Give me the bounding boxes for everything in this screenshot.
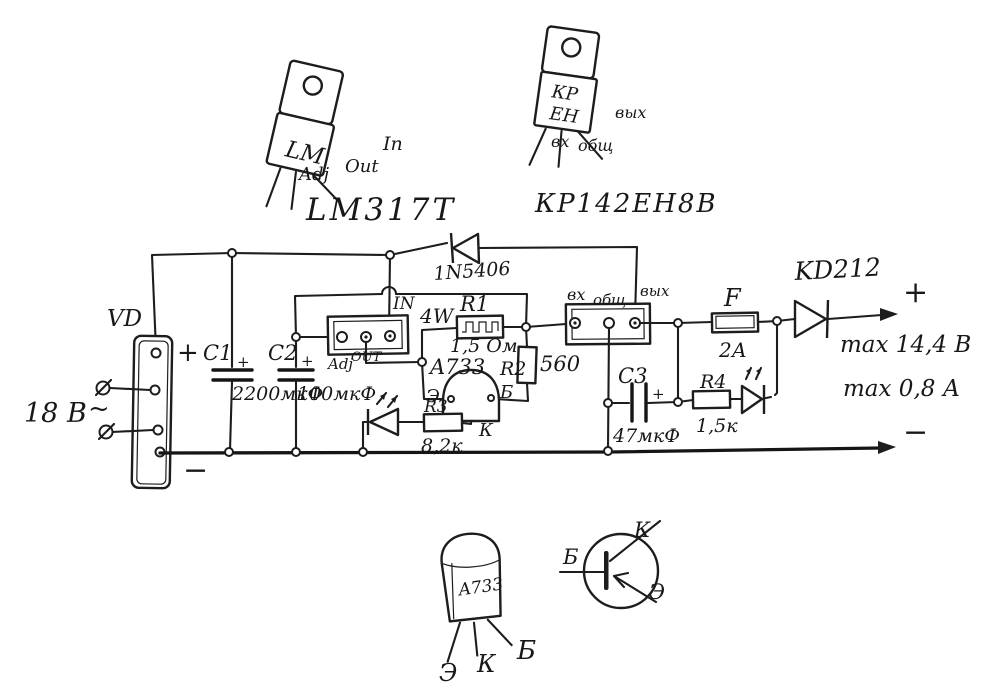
- regulator1-pin-adj: [337, 332, 347, 342]
- q1-pin-e: [448, 396, 454, 402]
- lm317-pin-label-in: In: [382, 133, 403, 155]
- c1-label: C1: [203, 341, 232, 365]
- a733-pin-label-e: Э: [439, 659, 457, 687]
- diode1-label: 1N5406: [433, 258, 511, 285]
- kren-body-marking-top: КР: [549, 81, 580, 106]
- r4-value: 1,5к: [696, 415, 738, 437]
- wire-led2-up: [775, 325, 777, 395]
- q1-label: A733: [428, 355, 485, 379]
- regulator2-in-label: вх: [567, 285, 585, 304]
- wire-gnd-drop: [608, 328, 609, 450]
- regulator1-in-label: IN: [392, 294, 416, 314]
- node: [225, 448, 233, 456]
- ac-symbol: ~: [88, 394, 110, 424]
- diode2-triangle-icon: [795, 301, 826, 337]
- bridge-pin-ac2: [154, 426, 163, 435]
- bridge-plus-sign: +: [177, 338, 199, 368]
- regulator2-pin-in-dot: [573, 321, 576, 324]
- r2-label: R2: [499, 358, 526, 380]
- r4-body: [693, 391, 730, 409]
- node: [292, 333, 300, 341]
- kren-title: КР142ЕН8В: [534, 189, 718, 219]
- capacitor-c3: C3 + 47мкФ: [608, 364, 680, 447]
- diode2-label: KD212: [793, 253, 882, 287]
- regulator2-pin-gnd: [604, 318, 614, 328]
- a733-pin-label-b: Б: [516, 636, 536, 666]
- output-minus-sign: −: [903, 415, 928, 450]
- r1-label: R1: [459, 292, 489, 316]
- symbol-emitter-label: Э: [649, 580, 665, 604]
- a733-leg-e: [445, 623, 463, 662]
- lm317-leg-adj: [266, 167, 280, 207]
- c2-value: 100мкФ: [297, 383, 376, 405]
- r3-label: R3: [423, 397, 448, 417]
- plus-output-arrow-icon: [880, 308, 898, 321]
- q1-collector-label: К: [478, 420, 494, 441]
- node: [292, 448, 300, 456]
- wire-to-reg2: [526, 324, 566, 327]
- wire-led2-dash: [766, 397, 771, 398]
- lm317-title: LM317T: [305, 192, 456, 228]
- q1-pin-b: [488, 395, 494, 401]
- r1-value: 1,5 Ом: [450, 335, 518, 357]
- regulator2-out-label: вых: [640, 282, 670, 300]
- kren-mount-hole-icon: [561, 37, 581, 57]
- output-max-current: max 0,8 А: [843, 376, 960, 402]
- circuit-diagram: LM Adj Out In LM317T КР ЕН вх общ вых КР…: [0, 0, 1000, 697]
- wire-bottom-rail: [160, 448, 880, 453]
- fuse-value: 2А: [718, 338, 747, 362]
- kren-body-marking-bottom: ЕН: [547, 103, 580, 128]
- node: [604, 447, 612, 455]
- node: [418, 358, 426, 366]
- node: [773, 317, 781, 325]
- wire-r4-branch: [678, 324, 693, 402]
- regulator2-pin-out-dot: [633, 321, 636, 324]
- lm317-pin-label-out: Out: [345, 156, 379, 177]
- output-line: F 2А KD212 + max 14,4 В max 0,8 А: [640, 253, 971, 402]
- bridge-rectifier: VD + − 18 В ~: [24, 306, 208, 488]
- c2-polarity: +: [301, 352, 314, 370]
- node: [386, 251, 394, 259]
- minus-output-arrow-icon: [878, 441, 896, 454]
- bridge-pin-ac1: [151, 386, 160, 395]
- transistor-symbol-drawing: Б К Э: [560, 518, 665, 608]
- wire-to-plus-output: [828, 315, 882, 319]
- lm317-pin-label-adj: Adj: [297, 164, 330, 185]
- regulator1-adj-label: Adj: [326, 355, 353, 373]
- node: [674, 319, 682, 327]
- output-plus-sign: +: [903, 275, 928, 310]
- kren-pin-label-in: вх: [551, 132, 569, 151]
- bridge-pin-plus: [152, 349, 161, 358]
- resistor-r1: R1 4W 1,5 Ом: [419, 292, 526, 357]
- led1-triangle-icon: [370, 409, 398, 435]
- c3-value: 47мкФ: [612, 425, 680, 447]
- bottom-rail: −: [160, 415, 928, 454]
- bridge-label: VD: [107, 306, 142, 332]
- led2: [742, 325, 777, 414]
- kren-package-drawing: КР ЕН вх общ вых КР142ЕН8В: [529, 26, 718, 219]
- a733-package-drawing: A733 Э К Б: [439, 531, 536, 687]
- bridge-minus-sign: −: [183, 453, 208, 488]
- a733-leg-b: [488, 618, 512, 646]
- c2-label: C2: [268, 341, 297, 365]
- output-max-voltage: max 14,4 В: [840, 332, 971, 358]
- r2-value: 560: [540, 352, 580, 376]
- led2-triangle-icon: [742, 386, 762, 413]
- lm317-package-drawing: LM Adj Out In LM317T: [257, 60, 456, 228]
- node: [522, 323, 530, 331]
- kren-leg-in: [530, 127, 546, 166]
- regulator2-gnd-label: общ: [593, 291, 626, 309]
- lm317-leg-out: [288, 172, 300, 209]
- a733-pin-label-k: К: [476, 650, 497, 678]
- symbol-collector-label: К: [633, 518, 651, 542]
- q1-base-label: Б: [499, 382, 513, 403]
- node: [228, 249, 236, 257]
- scanned-schematic-page: LM Adj Out In LM317T КР ЕН вх общ вых КР…: [0, 0, 1000, 697]
- kren-pin-label-out: вых: [615, 103, 646, 122]
- c1-polarity: +: [237, 353, 250, 371]
- fuse-label: F: [723, 284, 742, 312]
- symbol-base-label: Б: [562, 545, 578, 569]
- r1-power: 4W: [419, 304, 455, 328]
- regulator1-pin-in-dot: [388, 334, 391, 337]
- r4-label: R4: [699, 371, 726, 393]
- node: [604, 399, 612, 407]
- regulator1-pin-out-dot: [364, 335, 367, 338]
- input-voltage-label: 18 В: [24, 398, 87, 429]
- node: [674, 398, 682, 406]
- symbol-base-bar: [604, 551, 609, 590]
- c3-label: C3: [618, 364, 647, 388]
- diode1-triangle-icon: [453, 234, 479, 263]
- kren-pin-label-gnd: общ: [578, 136, 613, 155]
- protection-diode: 1N5406: [433, 233, 511, 285]
- node: [359, 448, 367, 456]
- c3-polarity: +: [652, 385, 665, 403]
